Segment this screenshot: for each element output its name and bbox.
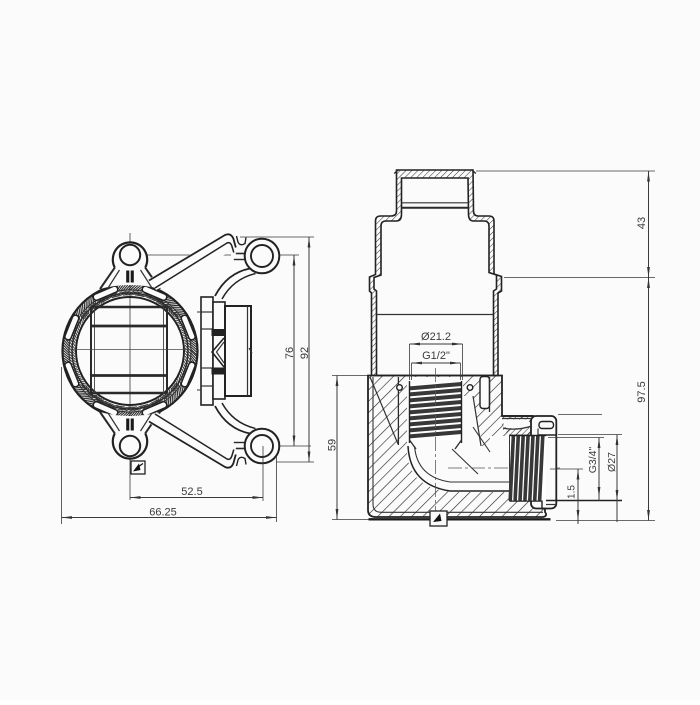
svg-text:92: 92 — [299, 347, 311, 359]
svg-text:52.5: 52.5 — [181, 486, 202, 498]
svg-text:43: 43 — [636, 217, 648, 229]
svg-text:76: 76 — [284, 347, 296, 359]
svg-text:Ø27: Ø27 — [606, 452, 618, 472]
svg-text:G3/4": G3/4" — [587, 446, 599, 473]
svg-text:G1/2": G1/2" — [422, 350, 450, 362]
svg-text:59: 59 — [327, 439, 339, 451]
svg-text:Ø21.2: Ø21.2 — [421, 331, 451, 343]
svg-text:66.25: 66.25 — [149, 507, 177, 519]
svg-text:97.5: 97.5 — [636, 381, 648, 402]
svg-text:1.5: 1.5 — [567, 485, 578, 499]
